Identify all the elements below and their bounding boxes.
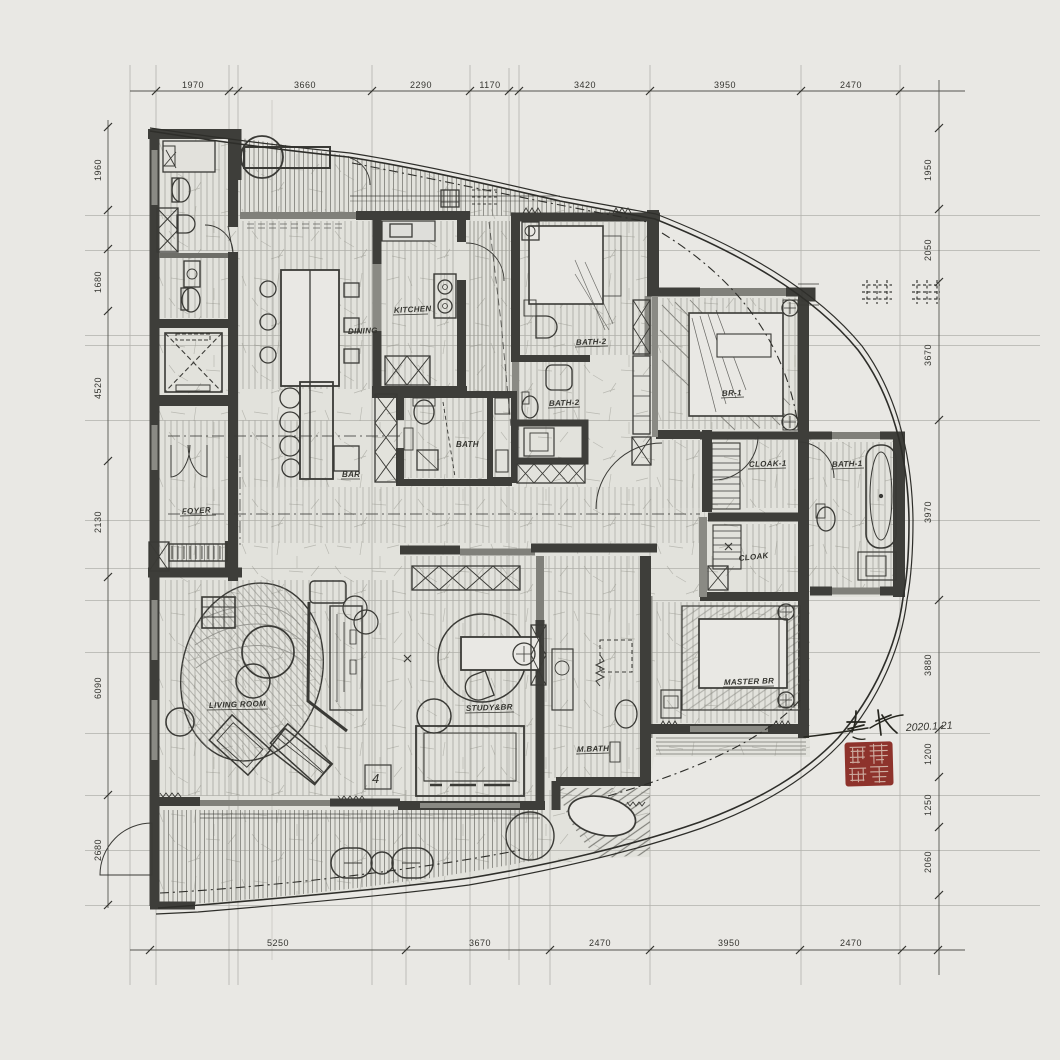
svg-text:1950: 1950: [923, 159, 933, 181]
svg-text:3670: 3670: [923, 344, 933, 366]
svg-text:CLOAK-1: CLOAK-1: [749, 459, 787, 469]
svg-text:4520: 4520: [93, 377, 103, 399]
svg-text:3880: 3880: [923, 654, 933, 676]
svg-text:1960: 1960: [93, 159, 103, 181]
svg-text:FOYER: FOYER: [182, 505, 211, 516]
svg-text:4: 4: [372, 771, 379, 786]
svg-text:3950: 3950: [714, 80, 736, 90]
svg-text:2060: 2060: [923, 851, 933, 873]
svg-text:1200: 1200: [923, 743, 933, 765]
svg-text:2470: 2470: [840, 938, 862, 948]
svg-text:BAR: BAR: [342, 470, 360, 479]
svg-text:1170: 1170: [479, 80, 500, 90]
svg-text:2050: 2050: [923, 239, 933, 261]
svg-text:3970: 3970: [923, 501, 933, 523]
svg-text:3660: 3660: [294, 80, 316, 90]
svg-text:1250: 1250: [923, 794, 933, 816]
svg-text:2290: 2290: [410, 80, 432, 90]
svg-text:STUDY&BR: STUDY&BR: [466, 702, 513, 713]
svg-text:2680: 2680: [93, 839, 103, 861]
svg-text:M.BATH: M.BATH: [577, 744, 610, 754]
svg-text:2470: 2470: [840, 80, 862, 90]
svg-text:BATH: BATH: [456, 440, 479, 449]
svg-text:3670: 3670: [469, 938, 491, 948]
svg-text:5250: 5250: [267, 938, 289, 948]
svg-text:6090: 6090: [93, 677, 103, 699]
svg-text:2470: 2470: [589, 938, 611, 948]
svg-text:BR-1: BR-1: [722, 388, 742, 398]
svg-text:MASTER BR: MASTER BR: [724, 676, 775, 687]
svg-text:BATH-1: BATH-1: [832, 459, 863, 469]
svg-text:2130: 2130: [93, 511, 103, 533]
svg-text:1680: 1680: [93, 271, 103, 293]
svg-text:1970: 1970: [182, 80, 204, 90]
svg-text:BATH-2: BATH-2: [576, 337, 607, 347]
svg-text:BATH-2: BATH-2: [549, 398, 580, 408]
svg-text:3950: 3950: [718, 938, 740, 948]
svg-text:3420: 3420: [574, 80, 596, 90]
svg-text:2020.1.21: 2020.1.21: [905, 720, 953, 734]
svg-text:DINING: DINING: [348, 326, 378, 336]
